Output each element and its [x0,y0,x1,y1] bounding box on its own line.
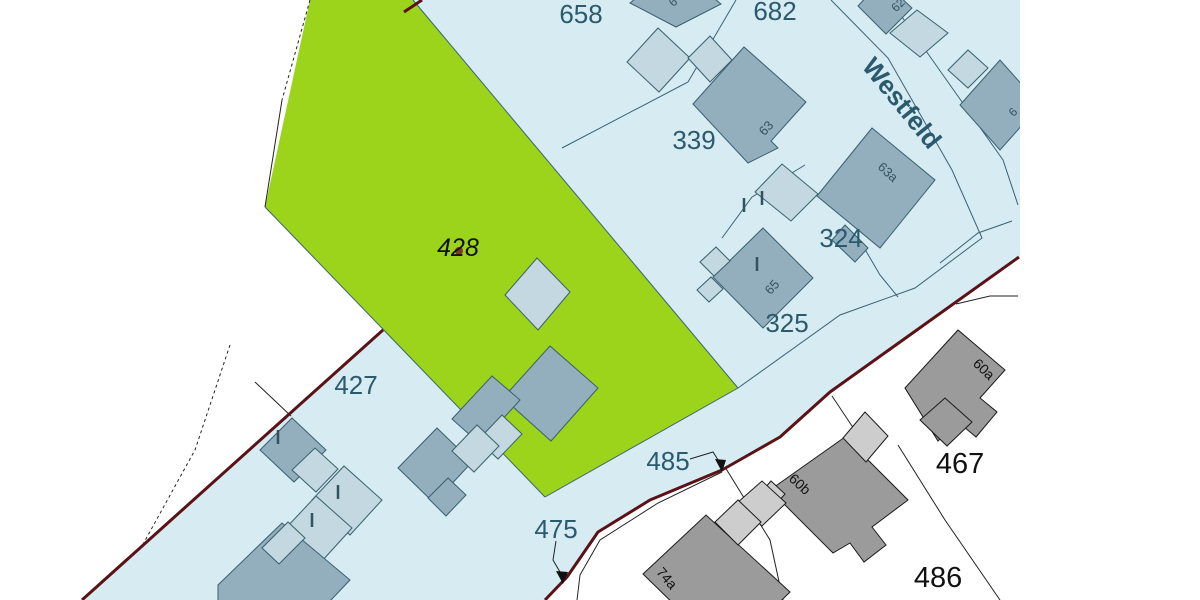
parcel-label-475: 475 [534,514,577,544]
parcel-label-427: 427 [334,370,377,400]
storey-mark-I [756,257,759,271]
parcel-label-682: 682 [753,0,796,26]
storey-mark-I [277,430,280,444]
parcel-label-658: 658 [559,0,602,29]
parcel-label-324: 324 [819,223,862,253]
cadastral-map[interactable]: 658682339324325427485475467486428Westfel… [0,0,1200,600]
storey-mark-I [743,198,746,212]
parcel-label-486: 486 [914,562,962,594]
parcel-label-485: 485 [646,446,689,476]
parcel-label-325: 325 [765,308,808,338]
storey-mark-I [311,513,314,527]
storey-mark-I [761,191,764,205]
map-viewport: 658682339324325427485475467486428Westfel… [0,0,1200,600]
parcel-label-339: 339 [672,125,715,155]
storey-mark-I [337,485,340,499]
parcel-label-428: 428 [437,234,479,262]
parcel-label-467: 467 [936,448,984,480]
map-edge-mask [1020,0,1200,600]
